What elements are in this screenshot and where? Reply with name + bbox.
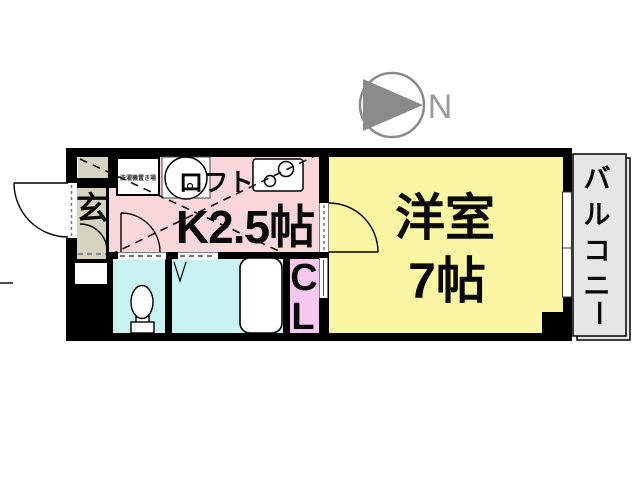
bathtub-icon bbox=[240, 258, 282, 333]
kitchen-label: K2.5帖 bbox=[176, 201, 314, 253]
balcony-char-5: ー bbox=[583, 300, 613, 327]
western-room-label: 洋室 bbox=[395, 190, 495, 246]
washer-label: 洗濯機置き場 bbox=[120, 174, 156, 182]
western-room-size-label: 7帖 bbox=[408, 253, 486, 309]
closet-label-c: C bbox=[290, 257, 317, 299]
stove-icon bbox=[253, 159, 303, 191]
compass-north-label: N bbox=[428, 88, 453, 126]
wall-pillar bbox=[542, 312, 567, 341]
wall-bath-closet bbox=[283, 252, 290, 341]
meter-box bbox=[75, 263, 107, 284]
stove-burner-small bbox=[265, 176, 276, 187]
loft-label: ロフト bbox=[178, 169, 253, 197]
wall-toilet-bath bbox=[165, 252, 172, 341]
window-lower bbox=[563, 248, 572, 297]
closet-label-l: L bbox=[291, 296, 314, 338]
balcony-label: バ ル コ ニ ー bbox=[583, 164, 613, 327]
wall-left bbox=[66, 148, 77, 341]
balcony-char-3: コ bbox=[584, 236, 611, 266]
balcony-char-1: バ bbox=[584, 164, 611, 194]
toilet-icon bbox=[131, 286, 154, 334]
balcony-char-4: ニ bbox=[584, 271, 611, 301]
balcony-char-2: ル bbox=[584, 200, 611, 230]
entrance-label: 玄 bbox=[76, 190, 108, 226]
stove-burner-large bbox=[279, 162, 294, 177]
window-upper bbox=[563, 192, 572, 248]
floor-plan-page: N bbox=[0, 0, 640, 480]
floor-plan-image: N bbox=[0, 0, 640, 480]
western-door-slot bbox=[320, 203, 329, 252]
